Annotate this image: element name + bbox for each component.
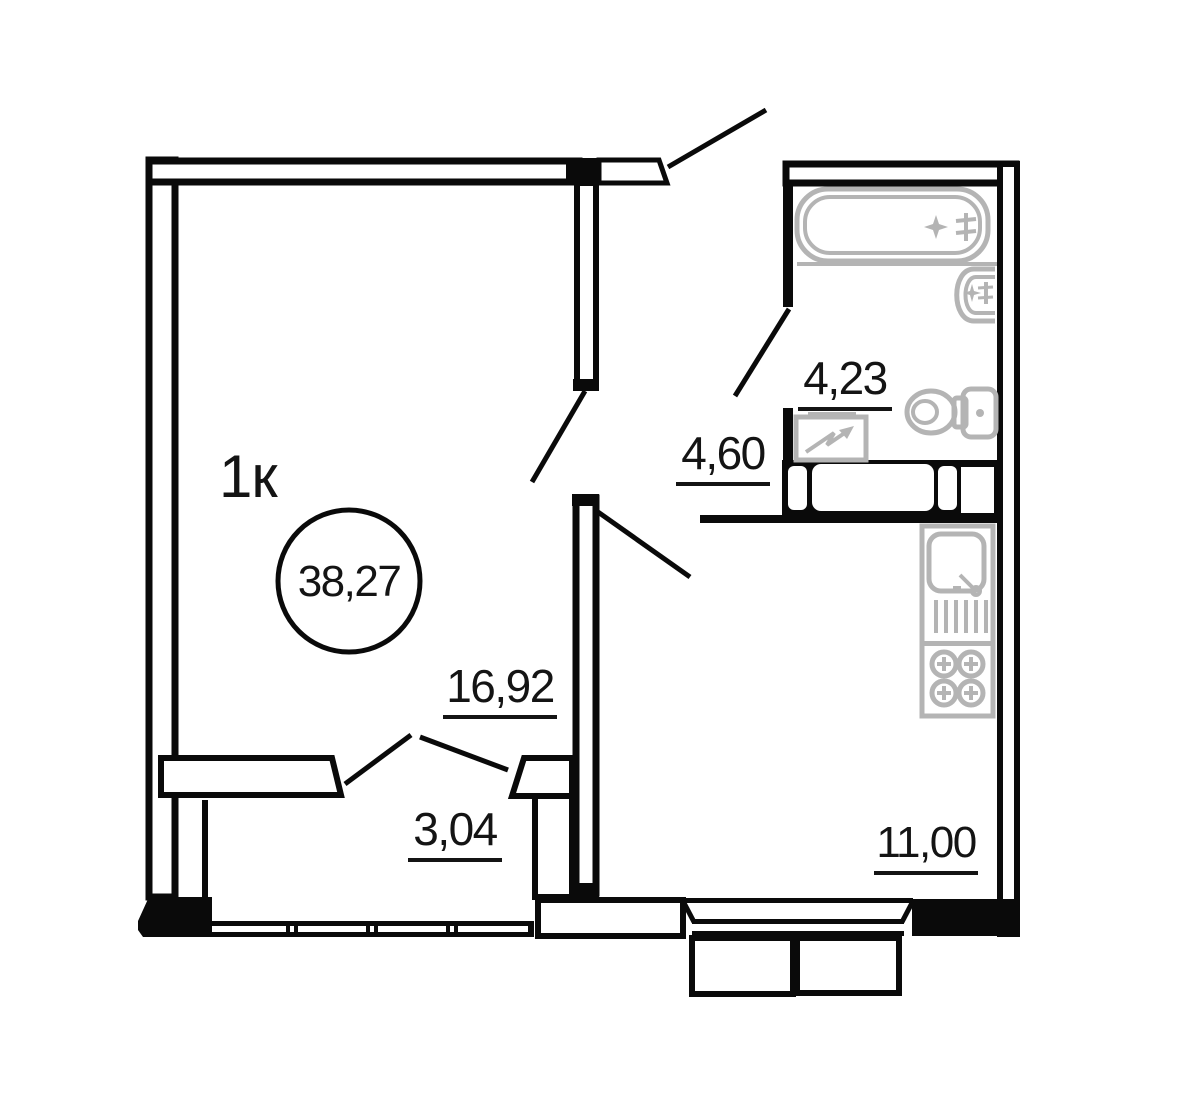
living-room-area-label: 16,92 [443,663,557,719]
corridor-kitchen-line [700,515,998,523]
living-door-line [532,391,585,482]
hall-opening-left-stub [161,758,341,795]
faucet-icon [978,297,993,298]
bathroom-left-wall-stub [783,408,793,462]
faucet-icon [956,219,976,221]
apartment-type-label: 1к [219,446,277,507]
total-area-label: 38,27 [283,560,415,605]
toilet [907,389,996,437]
entrance-door-line [668,110,766,167]
top-exterior-wall [149,161,579,182]
window-jamb [528,921,534,937]
hall-right-wall [535,796,572,897]
kitchen-area-label: 11,00 [874,821,978,875]
bathroom-left-wall [783,183,793,307]
hall-window-line [208,921,533,926]
bathroom-door-line [735,309,789,396]
window-reveal-line [202,800,208,924]
faucet-icon [960,575,973,588]
window-mullion [286,921,290,937]
stove-burners [932,652,983,705]
kitchen-sink [929,534,984,591]
balcony-block [692,938,793,994]
bathroom-area-label: 4,23 [798,355,892,411]
corridor-area-label: 4,60 [676,430,770,486]
balcony-door-reveal [902,901,913,922]
hall-opening-line [345,735,411,784]
floor-plan-drawing [0,0,1183,1101]
hall-area-label: 3,04 [408,806,502,862]
window-mullion [366,921,370,937]
faucet-icon [978,287,993,288]
door-jamb [938,466,957,510]
floor-plan: 1к 38,27 16,92 3,04 4,60 4,23 11,00 [0,0,1183,1101]
bottom-wall-face-line [683,898,913,903]
right-exterior-wall [1000,164,1017,934]
duct-shaft [961,467,994,513]
door-jamb [788,466,807,510]
washing-machine [796,412,866,460]
drainer-lines [936,600,986,633]
bottom-left-corner [138,897,212,937]
bathroom-door-leaf [812,464,934,511]
living-corridor-wall [577,183,596,383]
hall-window-line [208,932,533,937]
fixtures-layer [796,189,997,716]
bathtub [797,189,997,266]
bottom-wall-left [538,900,683,936]
bottom-wall-right [912,899,1016,936]
wall-end-cap [572,494,599,506]
window-mullion [446,921,450,937]
kitchen-door-line [598,512,690,577]
balcony-block [797,938,899,993]
faucet-icon [924,215,948,239]
kitchen-counter [922,526,993,716]
window-mullion [454,921,458,937]
bathroom-top-wall [786,164,1016,183]
window-mullion [294,921,298,937]
hall-opening-right-stub [512,758,572,796]
kitchen-partition-wall [576,498,596,893]
hall-opening-line [420,737,508,770]
window-mullion [374,921,378,937]
wash-basin [957,269,995,321]
wall-end-cap [573,379,599,391]
balcony-window-line [692,919,904,924]
top-wall-end-piece [599,160,667,183]
faucet-icon [956,231,976,233]
